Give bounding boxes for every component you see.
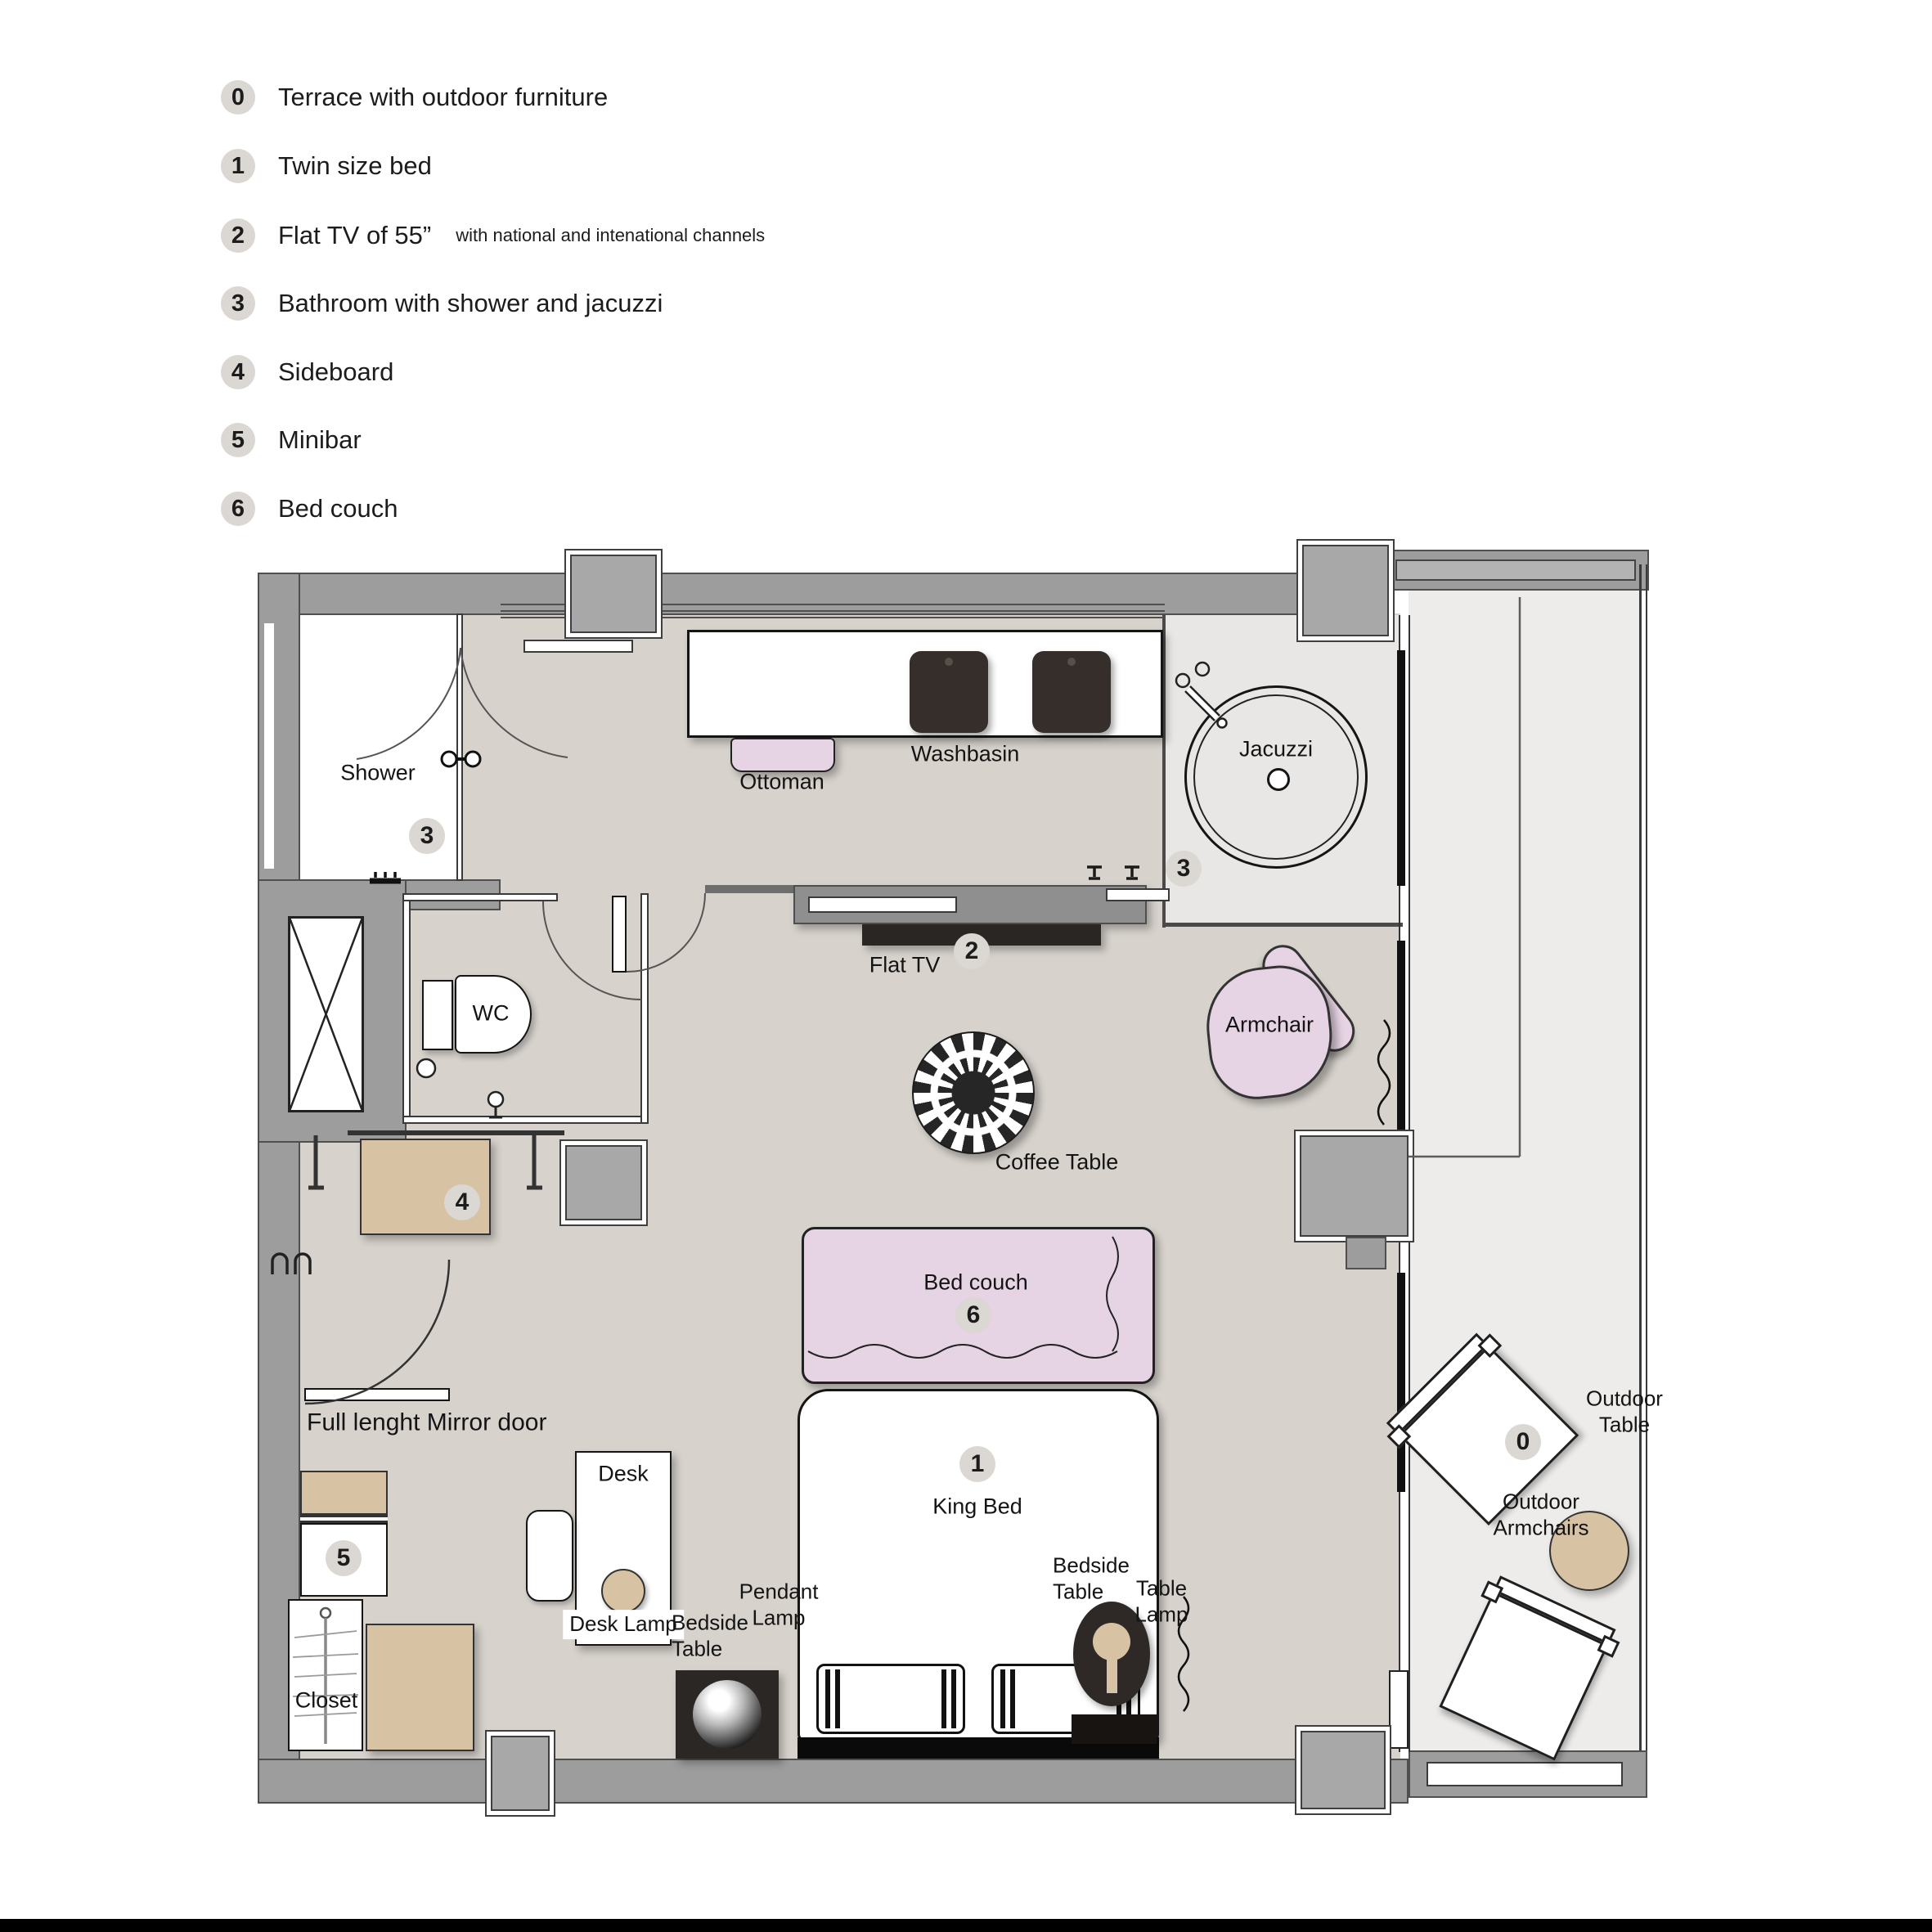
legend-item-minibar: 5 Minibar [221, 419, 386, 461]
legend-item-bathroom: 3 Bathroom with shower and jacuzzi [221, 282, 687, 325]
wc-label: WC [473, 1000, 510, 1027]
bed-pillow [816, 1664, 965, 1734]
legend-item-terrace: 0 Terrace with outdoor furniture [221, 76, 632, 119]
jacuzzi-tub [1184, 685, 1368, 869]
desk-chair [526, 1510, 573, 1602]
legend-label: Minibar [278, 425, 362, 455]
ottoman-label: Ottoman [739, 769, 824, 796]
legend-label: Twin size bed [278, 151, 432, 181]
desk-lamp-label: Desk Lamp [563, 1610, 684, 1639]
legend-label: Bathroom with shower and jacuzzi [278, 289, 663, 318]
bedside-table-left-label: Bedside Table [672, 1610, 748, 1661]
terrace-bottom-rail-slot [1427, 1762, 1623, 1786]
desk-lamp [601, 1569, 645, 1613]
badge-minibar-5: 5 [326, 1540, 362, 1576]
badge-shower-3: 3 [409, 818, 445, 854]
badge-flat-tv-2: 2 [954, 933, 990, 969]
legend-item-bed-couch: 6 Bed couch [221, 487, 423, 530]
badge-king-bed-1: 1 [959, 1446, 995, 1482]
terrace-top-beam-slot [1395, 559, 1636, 581]
hall-wall-stub [705, 885, 795, 893]
pendant-lamp-label: Pendant Lamp [739, 1579, 819, 1630]
legend-label: Bed couch [278, 494, 398, 523]
legend-label: Flat TV of 55” [278, 221, 431, 250]
legend-label: Terrace with outdoor furniture [278, 83, 608, 112]
legend-badge-1: 1 [221, 149, 255, 183]
shower-label: Shower [340, 760, 416, 787]
column [1300, 1135, 1409, 1237]
wall-ledge [523, 640, 633, 653]
tv-console-slot [808, 896, 957, 913]
column [491, 1736, 550, 1811]
wc-wall-top [402, 893, 558, 901]
badge-terrace-0: 0 [1505, 1424, 1541, 1460]
column [565, 1145, 642, 1220]
desk-label: Desk [598, 1461, 649, 1488]
legend-badge-3: 3 [221, 286, 255, 321]
bedside-tray [1072, 1714, 1157, 1744]
bathroom-wall-line-bottom [1166, 923, 1403, 927]
tv-counter-extension [1106, 888, 1170, 901]
badge-bathroom-3: 3 [1166, 851, 1202, 887]
mirror-door-leaf [304, 1388, 450, 1401]
legend-badge-0: 0 [221, 80, 255, 115]
toilet-tank [422, 980, 453, 1050]
page-bottom-rule [0, 1919, 1932, 1932]
wall-bottom [258, 1759, 1409, 1804]
mirror-door-label: Full lenght Mirror door [307, 1409, 546, 1439]
floorplan-page: 0 Terrace with outdoor furniture 1 Twin … [0, 0, 1932, 1932]
minibar-top [300, 1471, 388, 1515]
badge-sideboard-4: 4 [444, 1184, 480, 1220]
coffee-table [912, 1031, 1035, 1154]
jacuzzi-label: Jacuzzi [1239, 736, 1313, 763]
bedside-table-right-label: Bedside Table [1053, 1552, 1130, 1604]
legend-badge-6: 6 [221, 492, 255, 526]
hall-door-leaf [612, 896, 627, 973]
washbasin-sink [1032, 651, 1111, 733]
legend-item-flat-tv: 2 Flat TV of 55” with national and inten… [221, 214, 765, 257]
column [1302, 545, 1389, 636]
legend-item-twin-bed: 1 Twin size bed [221, 145, 456, 187]
column [1301, 1731, 1386, 1809]
sliding-glass-panel [1397, 1273, 1405, 1492]
king-bed-label: King Bed [932, 1494, 1022, 1521]
legend-badge-5: 5 [221, 423, 255, 457]
outdoor-table-label: Outdoor Table [1586, 1386, 1663, 1437]
closet-bench [366, 1624, 474, 1751]
sliding-door-leaf [1389, 1670, 1409, 1749]
badge-bed-couch-6: 6 [955, 1297, 991, 1333]
flat-tv-label: Flat TV [869, 952, 941, 979]
legend-item-sideboard: 4 Sideboard [221, 351, 418, 393]
sliding-glass-panel [1397, 650, 1405, 886]
wc-wall-right [640, 893, 649, 1124]
legend-label-suffix: with national and intenational channels [456, 225, 765, 246]
sideboard-rail [348, 1130, 564, 1135]
outdoor-armchairs-label: Outdoor Armchairs [1493, 1489, 1588, 1540]
shower-right-wall [456, 613, 463, 881]
wc-wall-bottom [402, 1116, 649, 1124]
legend-badge-2: 2 [221, 218, 255, 253]
legend-label: Sideboard [278, 357, 393, 387]
coffee-table-label: Coffee Table [995, 1149, 1119, 1176]
column-tab [1346, 1237, 1386, 1269]
sliding-glass-panel [1397, 941, 1405, 1130]
pendant-lamp [693, 1680, 762, 1749]
terrace-right-line [1639, 564, 1647, 1795]
washbasin-label: Washbasin [911, 741, 1020, 768]
wc-wall-left [402, 893, 411, 1124]
armchair-label: Armchair [1225, 1012, 1314, 1039]
ottoman [730, 738, 835, 772]
ventilation-shaft [288, 916, 364, 1112]
wall-window-slot-left [264, 623, 274, 869]
legend-badge-4: 4 [221, 355, 255, 389]
closet [288, 1599, 363, 1751]
washbasin-sink [910, 651, 988, 733]
minibar-rail [300, 1515, 388, 1523]
column [570, 555, 657, 633]
table-lamp-label: Table Lamp [1134, 1575, 1188, 1627]
bed-couch-label: Bed couch [923, 1269, 1028, 1296]
closet-label: Closet [295, 1687, 358, 1714]
